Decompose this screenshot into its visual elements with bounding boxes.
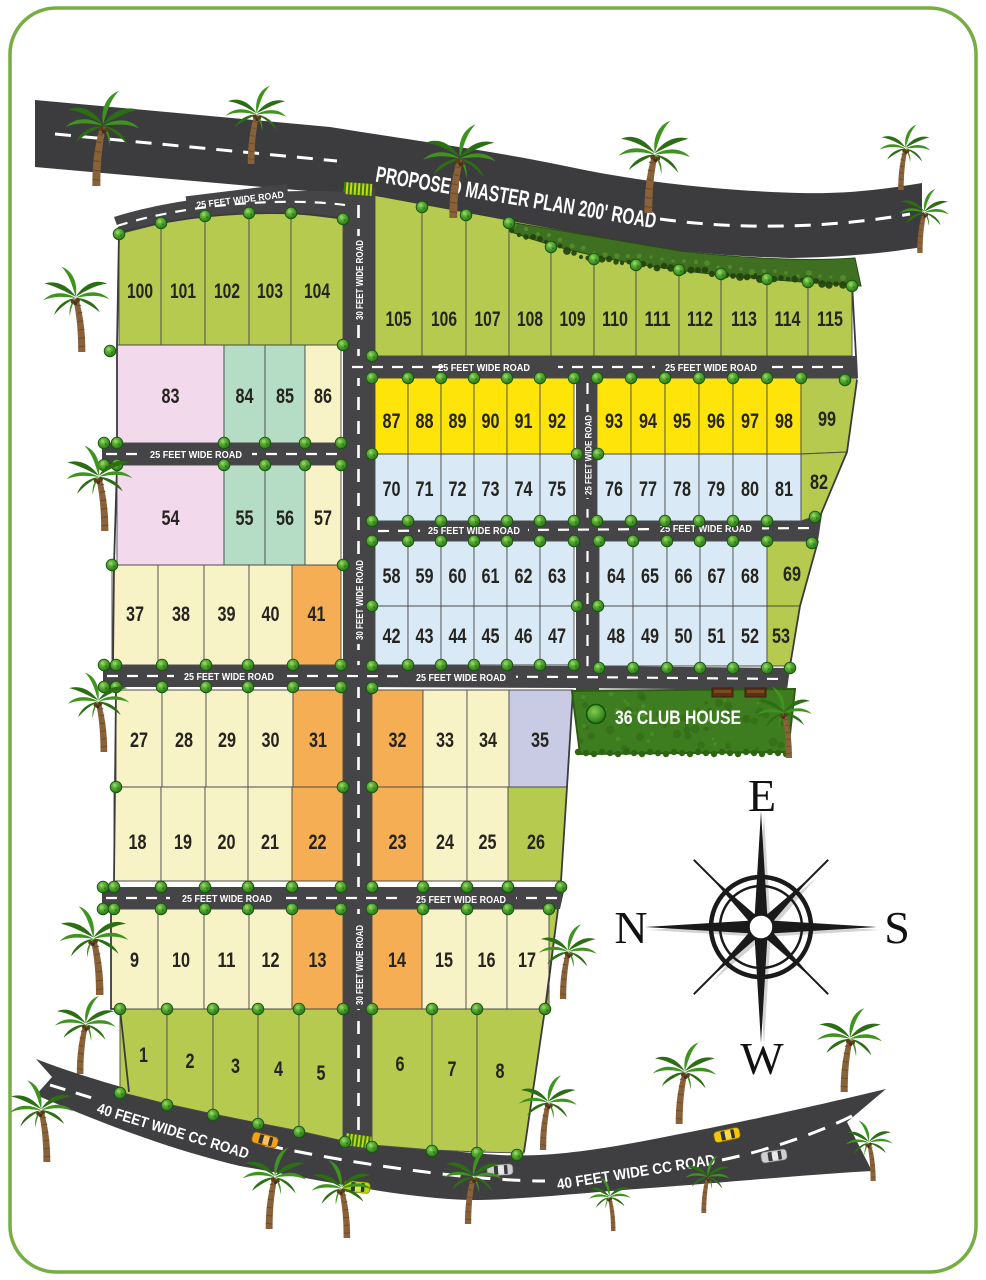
svg-text:72: 72 — [449, 478, 467, 501]
svg-text:25 FEET WIDE ROAD: 25 FEET WIDE ROAD — [184, 671, 274, 683]
svg-text:45: 45 — [482, 625, 500, 648]
svg-text:12: 12 — [262, 949, 280, 972]
svg-text:35: 35 — [531, 729, 549, 752]
svg-text:74: 74 — [515, 478, 533, 501]
svg-text:30 FEET WIDE ROAD: 30 FEET WIDE ROAD — [355, 925, 366, 1005]
svg-text:40: 40 — [262, 603, 280, 626]
svg-text:84: 84 — [236, 385, 254, 408]
svg-text:55: 55 — [236, 507, 254, 530]
svg-text:58: 58 — [383, 565, 401, 588]
svg-text:46: 46 — [515, 625, 533, 648]
svg-text:N: N — [614, 902, 647, 953]
svg-text:53: 53 — [772, 625, 790, 648]
svg-text:25: 25 — [479, 831, 497, 854]
svg-text:97: 97 — [741, 410, 759, 433]
svg-text:30 FEET WIDE ROAD: 30 FEET WIDE ROAD — [355, 560, 366, 640]
svg-text:50: 50 — [675, 625, 693, 648]
svg-text:81: 81 — [775, 478, 793, 501]
svg-text:68: 68 — [741, 565, 759, 588]
svg-text:38: 38 — [172, 603, 190, 626]
svg-text:87: 87 — [383, 410, 401, 433]
svg-text:57: 57 — [314, 507, 332, 530]
svg-text:70: 70 — [383, 478, 401, 501]
svg-text:22: 22 — [309, 831, 327, 854]
svg-text:82: 82 — [810, 471, 828, 494]
svg-text:107: 107 — [475, 308, 501, 331]
svg-text:10: 10 — [172, 949, 190, 972]
svg-text:42: 42 — [383, 625, 401, 648]
svg-text:1: 1 — [139, 1044, 148, 1067]
svg-text:109: 109 — [560, 308, 586, 331]
svg-text:16: 16 — [478, 949, 496, 972]
svg-text:15: 15 — [435, 949, 453, 972]
svg-text:102: 102 — [214, 280, 240, 303]
svg-text:113: 113 — [731, 308, 757, 331]
svg-text:104: 104 — [304, 280, 330, 303]
svg-text:96: 96 — [707, 410, 725, 433]
svg-text:27: 27 — [130, 729, 148, 752]
svg-text:47: 47 — [548, 625, 566, 648]
svg-text:20: 20 — [218, 831, 236, 854]
svg-text:86: 86 — [314, 385, 332, 408]
svg-text:103: 103 — [257, 280, 283, 303]
svg-text:69: 69 — [783, 563, 801, 586]
svg-text:100: 100 — [127, 280, 153, 303]
svg-text:95: 95 — [673, 410, 691, 433]
svg-text:25 FEET WIDE ROAD: 25 FEET WIDE ROAD — [416, 894, 506, 906]
svg-text:19: 19 — [174, 831, 192, 854]
svg-text:25 FEET WIDE ROAD: 25 FEET WIDE ROAD — [150, 449, 242, 461]
svg-text:63: 63 — [548, 565, 566, 588]
svg-text:91: 91 — [515, 410, 533, 433]
svg-text:18: 18 — [129, 831, 147, 854]
svg-text:62: 62 — [515, 565, 533, 588]
svg-text:29: 29 — [218, 729, 236, 752]
svg-text:112: 112 — [687, 308, 713, 331]
svg-text:115: 115 — [817, 308, 843, 331]
svg-text:24: 24 — [436, 831, 454, 854]
svg-text:51: 51 — [708, 625, 726, 648]
svg-text:56: 56 — [276, 507, 294, 530]
svg-text:25 FEET WIDE ROAD: 25 FEET WIDE ROAD — [416, 672, 506, 684]
svg-text:59: 59 — [416, 565, 434, 588]
svg-text:98: 98 — [775, 410, 793, 433]
svg-text:111: 111 — [645, 308, 671, 331]
svg-text:114: 114 — [775, 308, 801, 331]
svg-text:78: 78 — [673, 478, 691, 501]
svg-text:21: 21 — [261, 831, 279, 854]
svg-text:65: 65 — [641, 565, 659, 588]
svg-text:93: 93 — [605, 410, 623, 433]
svg-text:4: 4 — [274, 1058, 283, 1081]
svg-text:26: 26 — [527, 831, 545, 854]
svg-text:25 FEET WIDE ROAD: 25 FEET WIDE ROAD — [182, 893, 272, 905]
svg-text:85: 85 — [276, 385, 294, 408]
svg-text:17: 17 — [518, 949, 536, 972]
svg-text:67: 67 — [708, 565, 726, 588]
svg-text:52: 52 — [741, 625, 759, 648]
svg-text:32: 32 — [389, 729, 407, 752]
svg-text:73: 73 — [482, 478, 500, 501]
svg-text:105: 105 — [386, 308, 412, 331]
svg-text:25 FEET WIDE ROAD: 25 FEET WIDE ROAD — [665, 362, 757, 374]
svg-text:61: 61 — [482, 565, 500, 588]
svg-text:41: 41 — [308, 603, 326, 626]
svg-text:60: 60 — [449, 565, 467, 588]
svg-text:89: 89 — [449, 410, 467, 433]
svg-text:13: 13 — [309, 949, 327, 972]
svg-text:106: 106 — [431, 308, 457, 331]
svg-text:34: 34 — [479, 729, 497, 752]
svg-text:71: 71 — [416, 478, 434, 501]
svg-text:108: 108 — [517, 308, 543, 331]
svg-text:76: 76 — [605, 478, 623, 501]
svg-text:66: 66 — [675, 565, 693, 588]
svg-text:80: 80 — [741, 478, 759, 501]
svg-text:110: 110 — [602, 308, 628, 331]
svg-text:S: S — [884, 902, 910, 953]
svg-text:3: 3 — [231, 1055, 240, 1078]
svg-text:101: 101 — [170, 280, 196, 303]
svg-text:31: 31 — [309, 729, 327, 752]
svg-text:E: E — [748, 770, 776, 821]
svg-text:99: 99 — [818, 408, 836, 431]
svg-text:94: 94 — [639, 410, 657, 433]
svg-text:39: 39 — [218, 603, 236, 626]
svg-text:92: 92 — [548, 410, 566, 433]
svg-text:14: 14 — [388, 949, 406, 972]
svg-text:54: 54 — [162, 507, 180, 530]
svg-text:33: 33 — [436, 729, 454, 752]
svg-text:7: 7 — [448, 1058, 457, 1081]
svg-text:75: 75 — [548, 478, 566, 501]
svg-text:30: 30 — [262, 729, 280, 752]
svg-text:64: 64 — [607, 565, 625, 588]
svg-text:W: W — [740, 1033, 784, 1084]
svg-text:28: 28 — [175, 729, 193, 752]
svg-text:49: 49 — [641, 625, 659, 648]
svg-text:77: 77 — [639, 478, 657, 501]
svg-text:37: 37 — [126, 603, 144, 626]
svg-text:25 FEET WIDE ROAD: 25 FEET WIDE ROAD — [438, 362, 530, 374]
svg-text:48: 48 — [607, 625, 625, 648]
svg-text:83: 83 — [162, 385, 180, 408]
svg-text:79: 79 — [707, 478, 725, 501]
svg-text:90: 90 — [482, 410, 500, 433]
svg-text:88: 88 — [416, 410, 434, 433]
svg-text:9: 9 — [130, 949, 139, 972]
svg-text:11: 11 — [218, 949, 236, 972]
svg-text:5: 5 — [317, 1062, 326, 1085]
svg-text:8: 8 — [496, 1060, 505, 1083]
svg-text:25 FEET WIDE ROAD: 25 FEET WIDE ROAD — [660, 523, 752, 535]
svg-text:36 CLUB HOUSE: 36 CLUB HOUSE — [615, 708, 741, 729]
svg-text:2: 2 — [186, 1050, 195, 1073]
svg-text:43: 43 — [416, 625, 434, 648]
svg-text:44: 44 — [449, 625, 467, 648]
svg-text:6: 6 — [396, 1053, 405, 1076]
svg-text:23: 23 — [389, 831, 407, 854]
svg-text:30 FEET WIDE ROAD: 30 FEET WIDE ROAD — [355, 240, 366, 320]
